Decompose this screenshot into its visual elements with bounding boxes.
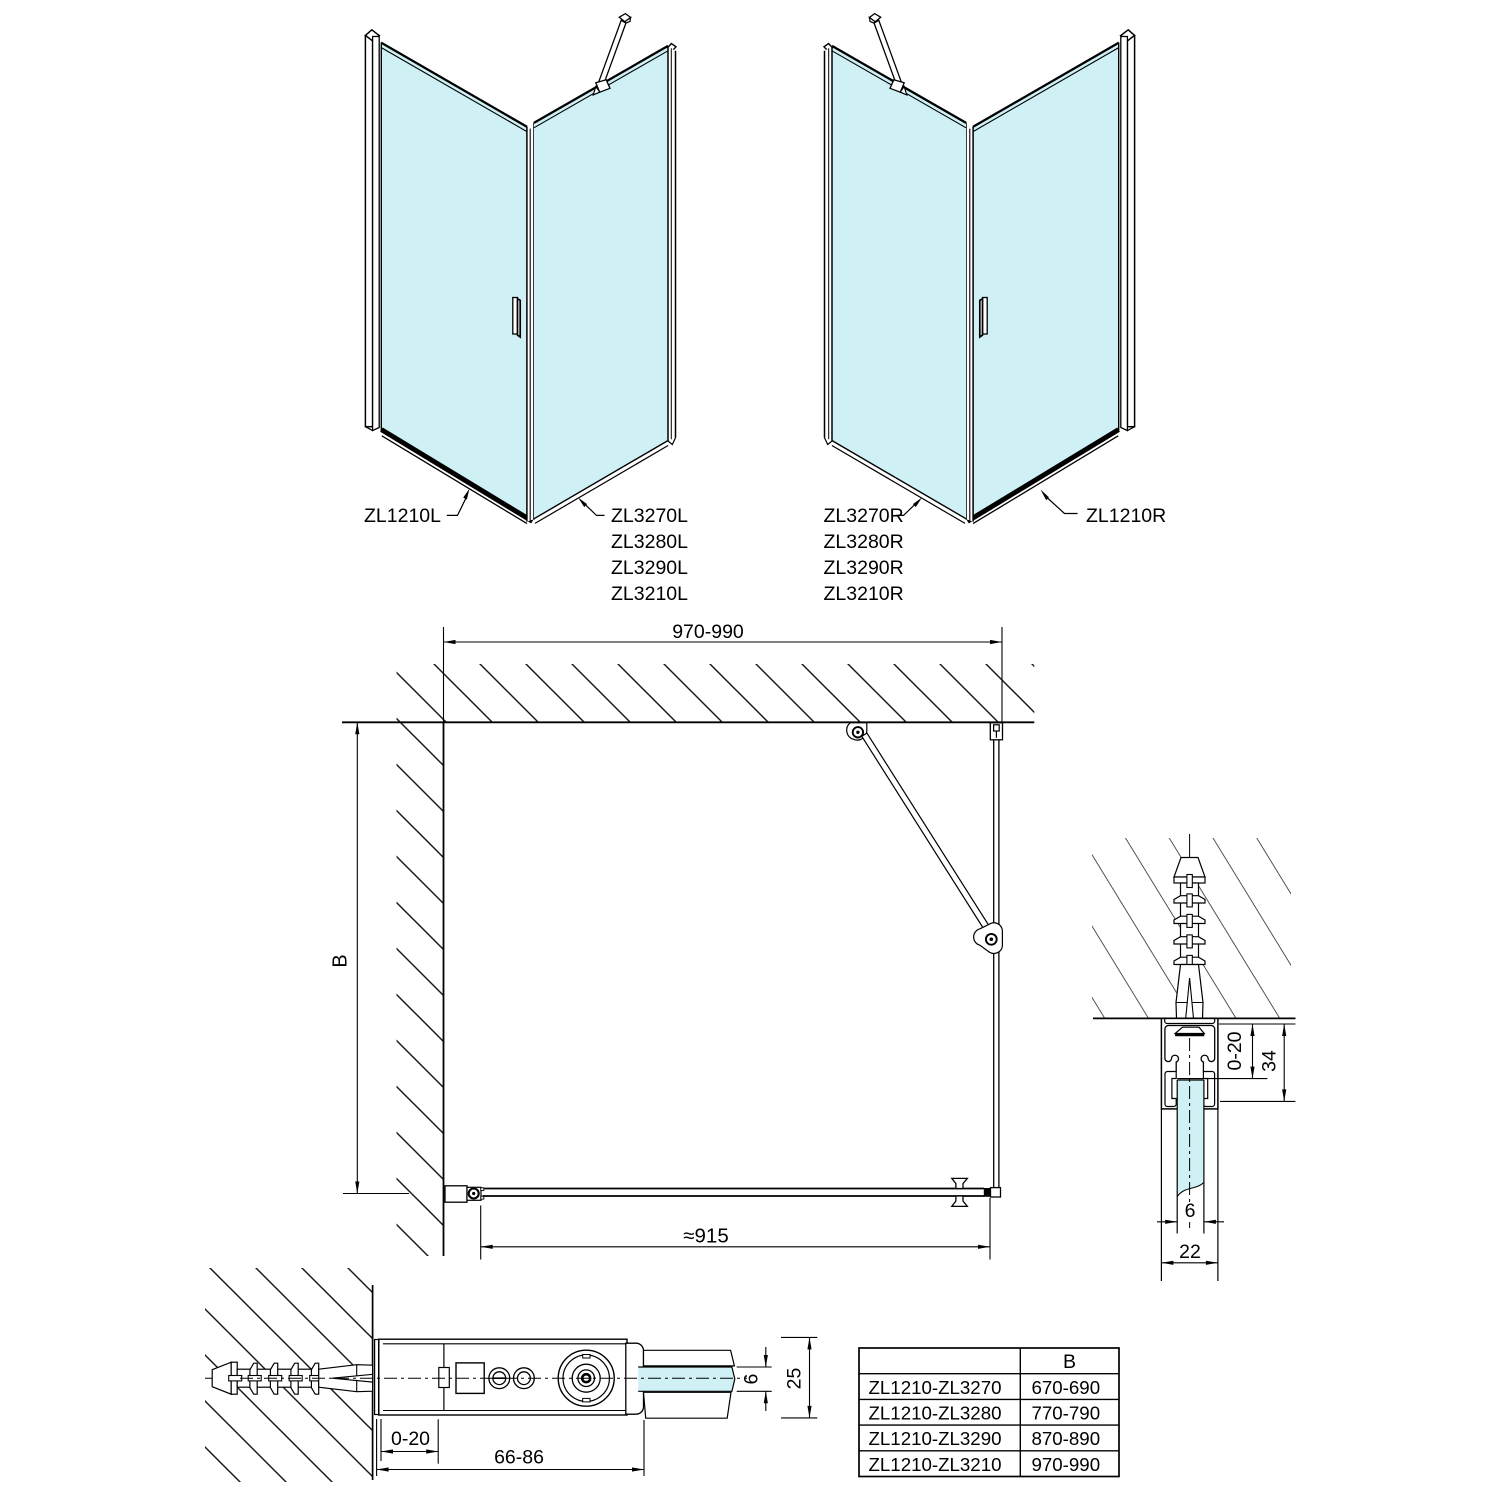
svg-text:ZL3290R: ZL3290R — [824, 557, 904, 579]
svg-text:B: B — [330, 954, 352, 967]
svg-text:66-86: 66-86 — [494, 1447, 544, 1469]
svg-text:ZL3210L: ZL3210L — [611, 583, 688, 605]
svg-text:ZL1210-ZL3290: ZL1210-ZL3290 — [869, 1428, 1002, 1449]
svg-text:ZL3280R: ZL3280R — [824, 531, 904, 553]
svg-text:ZL1210L: ZL1210L — [364, 505, 441, 527]
svg-text:770-790: 770-790 — [1032, 1403, 1101, 1424]
svg-text:870-890: 870-890 — [1032, 1428, 1101, 1449]
svg-text:ZL3290L: ZL3290L — [611, 557, 688, 579]
svg-text:≈915: ≈915 — [683, 1225, 728, 1248]
svg-text:ZL1210-ZL3210: ZL1210-ZL3210 — [869, 1454, 1002, 1475]
svg-text:0-20: 0-20 — [391, 1428, 430, 1450]
svg-text:ZL3280L: ZL3280L — [611, 531, 688, 553]
svg-text:25: 25 — [784, 1368, 806, 1390]
svg-text:ZL1210R: ZL1210R — [1086, 505, 1166, 527]
svg-text:ZL1210-ZL3270: ZL1210-ZL3270 — [869, 1377, 1002, 1398]
svg-text:ZL3270L: ZL3270L — [611, 505, 688, 527]
svg-text:ZL1210-ZL3280: ZL1210-ZL3280 — [869, 1403, 1002, 1424]
svg-text:670-690: 670-690 — [1032, 1377, 1101, 1398]
svg-text:970-990: 970-990 — [672, 621, 744, 643]
svg-text:B: B — [1063, 1351, 1076, 1373]
svg-text:6: 6 — [741, 1374, 763, 1385]
svg-text:22: 22 — [1179, 1241, 1201, 1263]
svg-text:970-990: 970-990 — [1032, 1454, 1101, 1475]
svg-text:6: 6 — [1185, 1200, 1196, 1222]
svg-text:0-20: 0-20 — [1224, 1031, 1246, 1070]
svg-text:34: 34 — [1259, 1050, 1281, 1072]
svg-text:ZL3210R: ZL3210R — [824, 583, 904, 605]
svg-text:ZL3270R: ZL3270R — [824, 505, 904, 527]
